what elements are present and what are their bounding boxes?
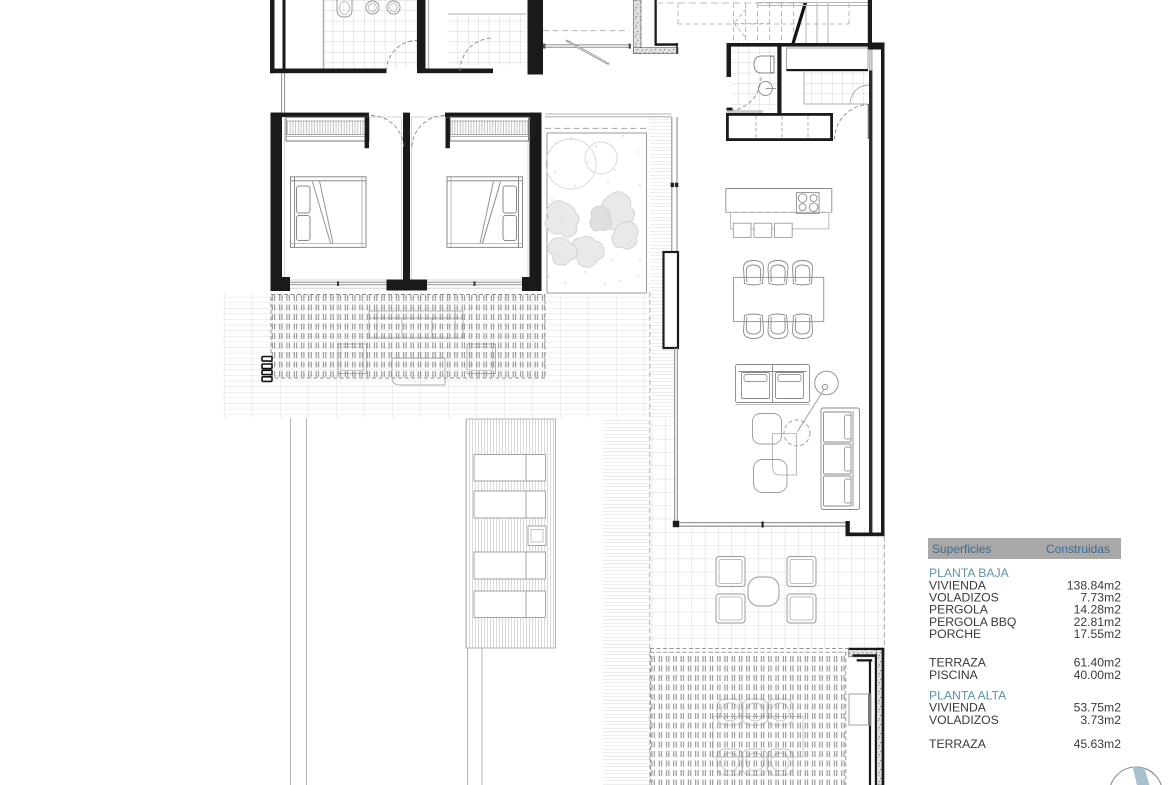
svg-text:Superficies: Superficies	[932, 542, 991, 556]
svg-text:PORCHE: PORCHE	[929, 627, 981, 641]
svg-text:3.73m2: 3.73m2	[1080, 713, 1121, 727]
svg-text:40.00m2: 40.00m2	[1074, 668, 1122, 682]
svg-text:VOLADIZOS: VOLADIZOS	[929, 713, 999, 727]
svg-text:PISCINA: PISCINA	[929, 668, 979, 682]
svg-text:TERRAZA: TERRAZA	[929, 737, 987, 751]
svg-text:45.63m2: 45.63m2	[1074, 737, 1122, 751]
svg-text:17.55m2: 17.55m2	[1074, 627, 1122, 641]
svg-text:Construidas: Construidas	[1046, 542, 1110, 556]
